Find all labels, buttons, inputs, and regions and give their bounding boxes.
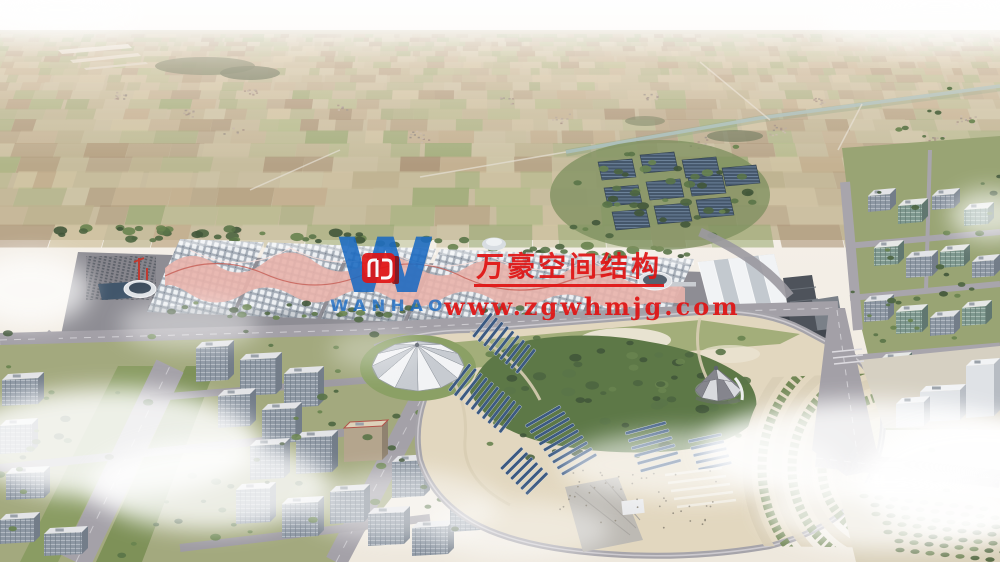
scene-canvas (0, 0, 1000, 562)
aerial-rendering-stage: W WANHAO 万豪空间结构 www.zgwhmjg.com (0, 0, 1000, 562)
cone-tent (372, 341, 464, 391)
oval-hall-left (124, 281, 156, 298)
